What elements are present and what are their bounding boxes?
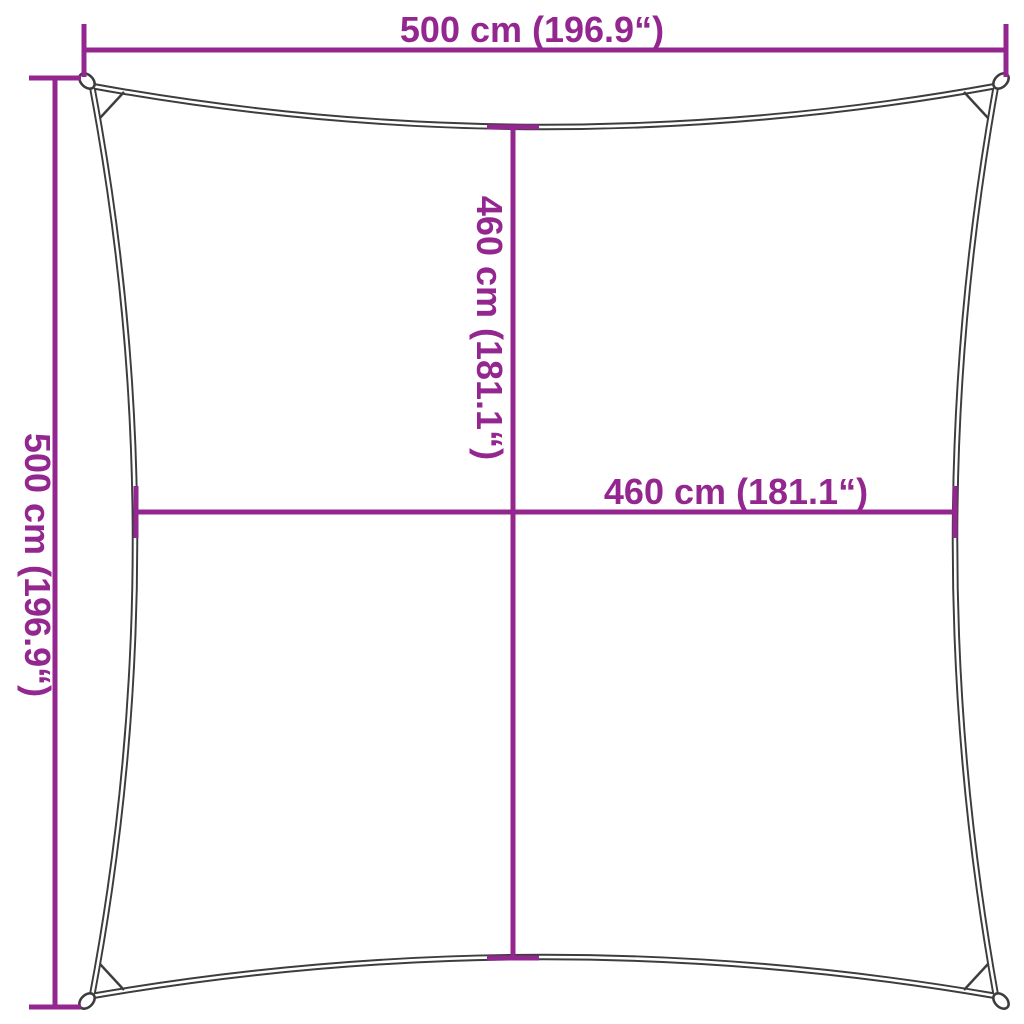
left-dimension-label: 500 cm (196.9“) [17,433,58,697]
sail-outline [92,86,996,996]
shade-sail-shape [76,70,1011,1011]
inner-horizontal-dimension-label: 460 cm (181.1“) [604,471,868,512]
product-dimension-diagram: 500 cm (196.9“) 500 cm (196.9“) 460 cm (… [0,0,1024,1024]
dimension-diagram-canvas: 500 cm (196.9“) 500 cm (196.9“) 460 cm (… [0,0,1024,1024]
top-dimension-label: 500 cm (196.9“) [400,9,664,50]
inner-vertical-dimension-label: 460 cm (181.1“) [469,196,510,460]
